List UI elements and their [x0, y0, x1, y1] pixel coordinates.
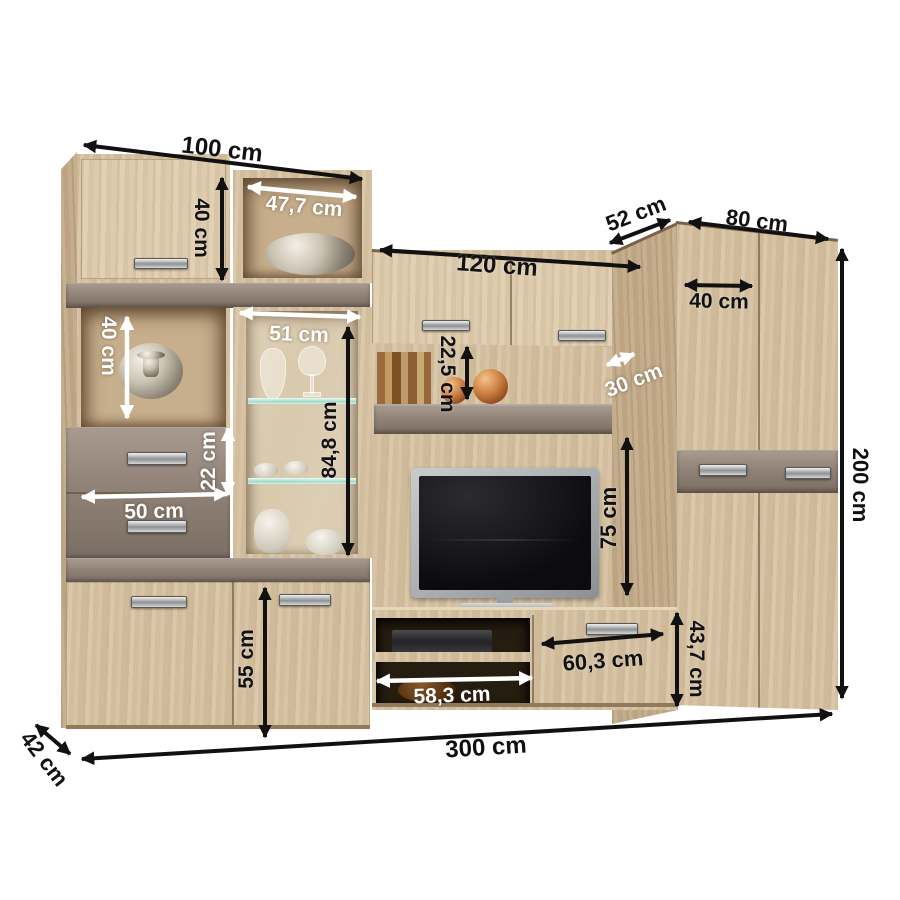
- dim-drawer-width: 50 cm: [124, 499, 184, 524]
- bench-drawer-handle: [586, 623, 638, 635]
- bottom-door-gap: [232, 582, 234, 727]
- dvd-player: [392, 630, 492, 652]
- wardrobe-handle-left: [699, 464, 747, 476]
- left-gloss-band-upper: [66, 283, 370, 308]
- dim-left-niche-height: 40 cm: [96, 316, 120, 376]
- drawer-handle-top: [127, 452, 187, 465]
- decor-vase-lip: [137, 351, 165, 359]
- dim-display-case-width: 51 cm: [269, 322, 329, 348]
- dim-bench-height: 43,7 cm: [684, 620, 708, 697]
- display-top-niche: [243, 178, 362, 278]
- dim-bench-niche-width: 58,3 cm: [413, 683, 491, 710]
- decor-books: [377, 352, 431, 404]
- decor-copper-ball-large: [473, 369, 508, 404]
- dim-total-depth: 42 cm: [15, 726, 74, 791]
- drawer-gap: [66, 492, 230, 494]
- dim-wardrobe-door-width: 40 cm: [689, 289, 749, 314]
- tv-screen: [419, 476, 591, 590]
- wall-unit-dimension-diagram: 100 cm 40 cm 47,7 cm 51 cm 40 cm 22 cm 5…: [0, 0, 900, 900]
- dim-display-case-glass-height: 84,8 cm: [318, 401, 342, 478]
- bench-middle-shelf: [372, 652, 534, 662]
- dim-total-height: 200 cm: [847, 448, 873, 523]
- bottom-door-handle-left: [131, 596, 187, 608]
- dim-drawer-height: 22 cm: [197, 431, 221, 491]
- base-shadow-left: [66, 725, 370, 729]
- bench-drawer-gap: [532, 615, 534, 707]
- left-top-door-handle: [134, 258, 188, 269]
- dim-bridge-cabinet-width: 120 cm: [455, 249, 538, 283]
- dim-shelf-gap-height: 22,5 cm: [435, 335, 459, 412]
- dim-bottom-door-height: 55 cm: [235, 629, 259, 689]
- bottom-doors: [66, 582, 370, 727]
- wardrobe-handle-right: [785, 467, 831, 479]
- left-gloss-band-lower: [66, 558, 370, 583]
- bridge-door-handle-left: [422, 320, 470, 331]
- display-top-frame: [233, 170, 372, 283]
- decor-silver-egg: [265, 233, 355, 275]
- bottom-door-handle-right: [279, 594, 331, 606]
- dim-tv-space-height: 75 cm: [596, 487, 622, 549]
- dim-total-width: 300 cm: [445, 732, 528, 765]
- dim-left-top-door-height: 40 cm: [189, 198, 213, 258]
- bridge-door-handle-right: [558, 330, 606, 341]
- tv: [411, 468, 599, 598]
